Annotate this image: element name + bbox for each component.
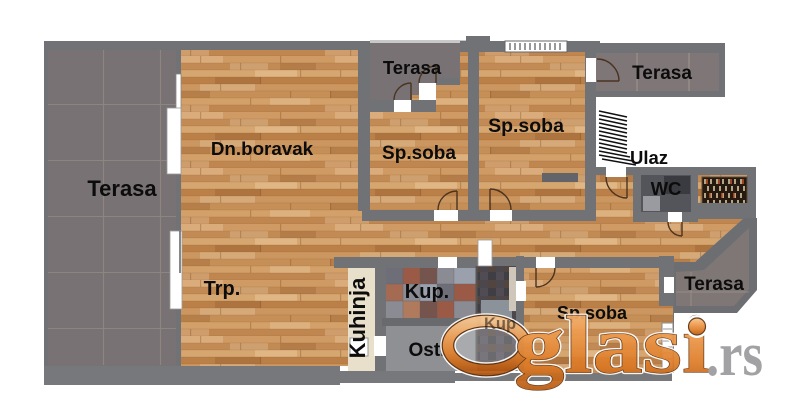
svg-text:glasi: glasi: [514, 299, 710, 390]
svg-text:Kup.: Kup.: [405, 281, 449, 303]
svg-text:Terasa: Terasa: [632, 63, 692, 84]
svg-text:Trp.: Trp.: [204, 278, 241, 300]
svg-text:Terasa: Terasa: [87, 176, 157, 201]
svg-text:Ost.: Ost.: [409, 340, 446, 361]
svg-text:Ulaz: Ulaz: [630, 147, 668, 168]
svg-text:Dn.boravak: Dn.boravak: [211, 138, 314, 159]
svg-text:Terasa: Terasa: [383, 57, 442, 78]
svg-text:.rs: .rs: [706, 321, 763, 389]
svg-text:Kup: Kup: [484, 315, 516, 333]
svg-text:Sp.soba: Sp.soba: [488, 115, 564, 137]
svg-text:Terasa: Terasa: [684, 274, 744, 295]
svg-text:WC: WC: [651, 178, 682, 199]
svg-text:Kuhinja: Kuhinja: [345, 277, 370, 358]
svg-text:Sp.soba: Sp.soba: [382, 143, 456, 164]
